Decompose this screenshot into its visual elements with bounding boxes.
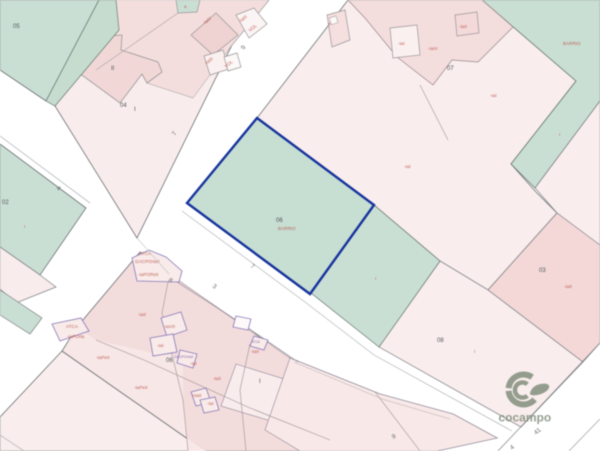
svg-text:-IaI: -IaI (490, 93, 497, 98)
svg-text:-IaII: -IaII (459, 24, 467, 29)
svg-text:-IaI: -IaI (398, 41, 405, 46)
svg-text:a: a (328, 21, 331, 26)
svg-text:-IaII: -IaII (213, 376, 221, 381)
svg-text:-IaPeII: -IaPeII (134, 385, 148, 390)
svg-text:ATCA: ATCA (66, 324, 79, 329)
svg-text:I: I (474, 349, 475, 354)
svg-text:GACPOrtaII: GACPOrtaII (135, 259, 160, 264)
svg-text:06: 06 (276, 218, 283, 224)
svg-text:-IaI: -IaI (157, 343, 164, 348)
svg-text:cocampo: cocampo (499, 411, 552, 425)
svg-text:-IaII: -IaII (138, 312, 146, 317)
svg-text:02: 02 (2, 200, 9, 206)
svg-text:08: 08 (437, 338, 444, 344)
svg-text:I: I (559, 132, 560, 137)
svg-text:a: a (184, 4, 187, 9)
svg-text:-IaPOrta: -IaPOrta (67, 334, 85, 339)
svg-text:-IaPeII: -IaPeII (96, 355, 110, 360)
svg-text:-IaIV: -IaIV (428, 46, 439, 51)
svg-text:-IaII: -IaII (564, 284, 572, 289)
svg-text:II: II (111, 66, 115, 72)
svg-text:05: 05 (13, 24, 20, 30)
svg-text:GACPOrtaII: GACPOrtaII (174, 355, 193, 359)
svg-text:06: 06 (166, 358, 173, 364)
svg-text:03: 03 (539, 268, 546, 274)
svg-text:-IaII: -IaII (251, 349, 259, 354)
svg-text:-IaVII: -IaVII (164, 324, 175, 329)
svg-text:-IaI: -IaI (404, 164, 411, 169)
svg-text:ATCA: ATCA (251, 340, 261, 344)
svg-text:ATCA: ATCA (139, 251, 152, 256)
svg-text:BARRIO: BARRIO (563, 41, 581, 46)
svg-text:07: 07 (447, 66, 454, 72)
svg-text:BARRIO: BARRIO (278, 226, 296, 231)
svg-text:04: 04 (120, 103, 127, 109)
svg-text:AtaII: AtaII (192, 393, 201, 398)
svg-text:-IaPOReII: -IaPOReII (138, 272, 158, 277)
svg-text:-IaI: -IaI (190, 361, 197, 366)
svg-text:I: I (375, 276, 376, 281)
svg-text:I: I (24, 224, 25, 229)
svg-text:-IaI: -IaI (207, 401, 214, 406)
